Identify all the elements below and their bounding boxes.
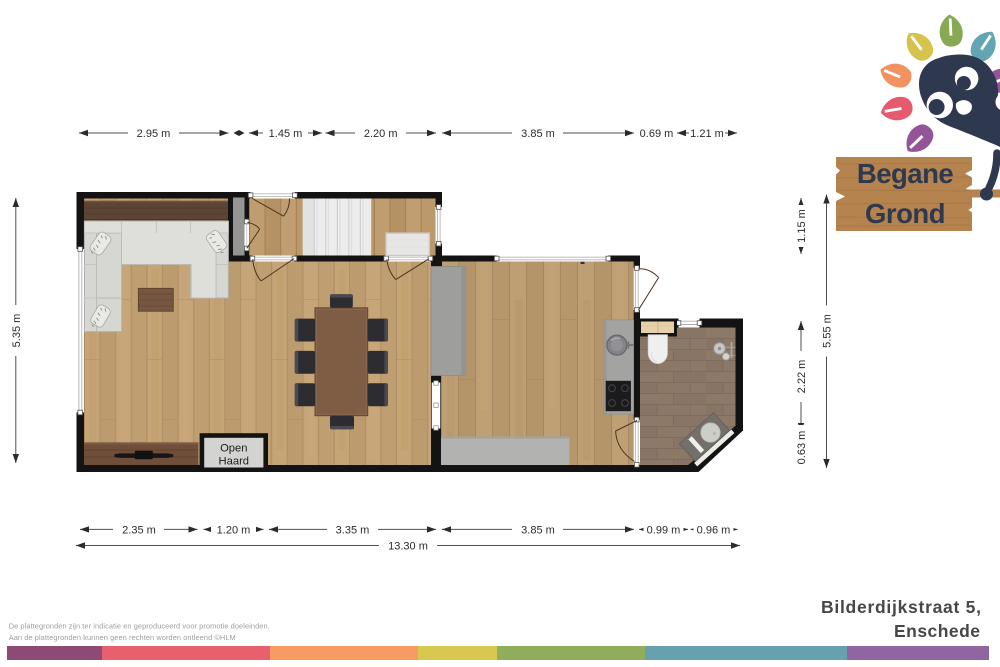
svg-text:13.30 m: 13.30 m bbox=[388, 541, 428, 553]
svg-text:2.20 m: 2.20 m bbox=[364, 128, 398, 140]
svg-text:Haard: Haard bbox=[219, 456, 249, 468]
svg-text:De plattegronden zijn ter indi: De plattegronden zijn ter indicatie en g… bbox=[9, 621, 270, 630]
svg-text:2.35 m: 2.35 m bbox=[122, 524, 156, 536]
svg-text:3.85 m: 3.85 m bbox=[521, 524, 555, 536]
svg-text:Bilderdijkstraat 5,: Bilderdijkstraat 5, bbox=[821, 597, 981, 617]
svg-text:5.35 m: 5.35 m bbox=[11, 314, 23, 348]
svg-text:1.45 m: 1.45 m bbox=[269, 128, 303, 140]
svg-text:1.20 m: 1.20 m bbox=[217, 524, 251, 536]
svg-text:Open: Open bbox=[220, 443, 247, 455]
svg-text:Aan de plattegronden kunnen ge: Aan de plattegronden kunnen geen rechten… bbox=[9, 633, 236, 642]
svg-text:0.69 m: 0.69 m bbox=[640, 128, 674, 140]
svg-text:Begane: Begane bbox=[857, 158, 954, 189]
svg-text:2.22 m: 2.22 m bbox=[796, 360, 808, 394]
svg-text:Enschede: Enschede bbox=[894, 621, 980, 641]
svg-text:1.21 m: 1.21 m bbox=[690, 128, 724, 140]
svg-text:5.55 m: 5.55 m bbox=[822, 314, 834, 348]
svg-text:0.96 m: 0.96 m bbox=[697, 524, 731, 536]
svg-text:Grond: Grond bbox=[865, 198, 945, 229]
svg-text:0.99 m: 0.99 m bbox=[647, 524, 681, 536]
svg-text:2.95 m: 2.95 m bbox=[137, 128, 171, 140]
svg-text:1.15 m: 1.15 m bbox=[796, 209, 808, 243]
svg-text:0.63 m: 0.63 m bbox=[796, 431, 808, 465]
svg-text:3.85 m: 3.85 m bbox=[521, 128, 555, 140]
svg-text:3.35 m: 3.35 m bbox=[336, 524, 370, 536]
